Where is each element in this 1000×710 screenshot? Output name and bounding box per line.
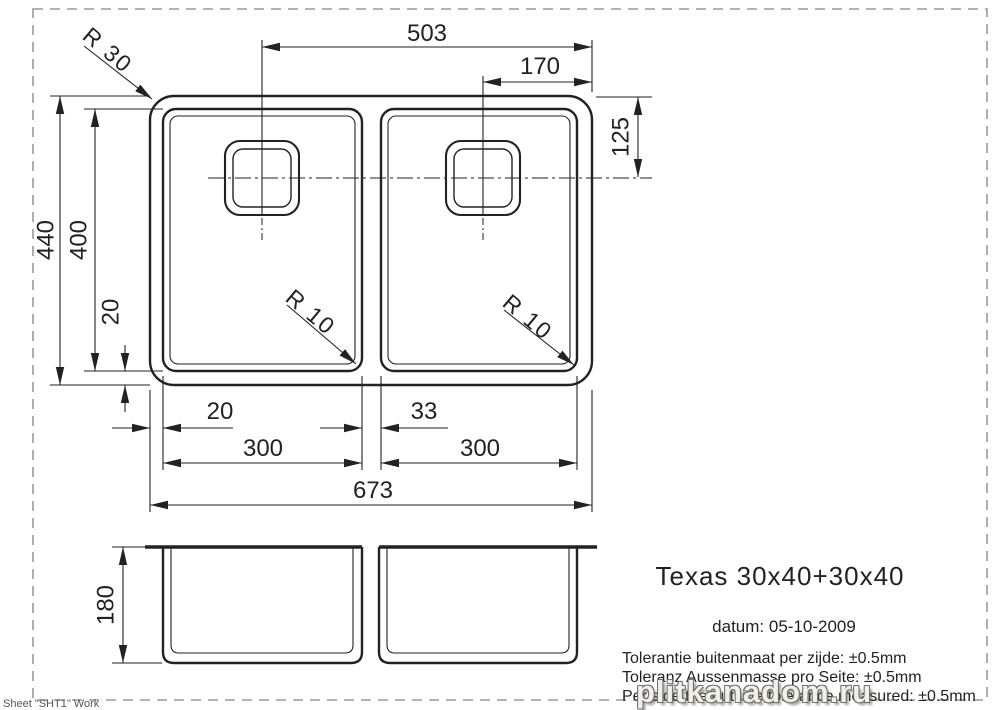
dim-300-right-label: 300 [460,435,500,462]
tolerance-line-nl: Tolerantie buitenmaat per zijde: ±0.5mm [622,650,906,667]
sink-technical-drawing: 503 170 125 R 30 R 10 R 10 440 400 20 20… [0,0,1000,710]
date-line: datum: 05-10-2009 [712,617,856,636]
side-view [145,547,597,663]
dim-180-label: 180 [92,585,119,625]
watermark: plitkanadom.ru [636,674,872,710]
page-border [33,9,987,700]
dim-20-bottom-label: 20 [207,398,234,425]
dim-33-label: 33 [411,398,438,425]
extension-lines [50,40,652,663]
dim-440-label: 440 [32,220,59,260]
radius-bowl-right-label: R 10 [498,289,558,345]
drawing-sheet: 503 170 125 R 30 R 10 R 10 440 400 20 20… [0,0,1000,710]
dim-20-left-label: 20 [97,299,124,326]
radius-rim-label: R 30 [78,22,138,78]
dim-673-label: 673 [353,477,393,504]
dim-300-left-label: 300 [243,435,283,462]
radius-bowl-left-label: R 10 [281,284,341,340]
dimension-labels: 503 170 125 R 30 R 10 R 10 440 400 20 20… [32,20,634,625]
sink-rim-outline [150,96,592,385]
side-bowl-left-inner-line [171,548,353,653]
side-bowl-right-inner-line [387,548,569,653]
dimension-lines [60,46,638,663]
dim-170-label: 170 [520,53,560,80]
top-view [150,96,652,385]
dim-400-label: 400 [65,220,92,260]
dim-125-label: 125 [607,117,634,157]
dim-503-label: 503 [407,20,447,47]
side-bowl-right-outline [379,547,577,663]
side-bowl-left-outline [163,547,362,663]
sheet-label: Sheet "SHT1" Work [3,698,100,710]
model-name: Texas 30x40+30x40 [655,561,904,591]
